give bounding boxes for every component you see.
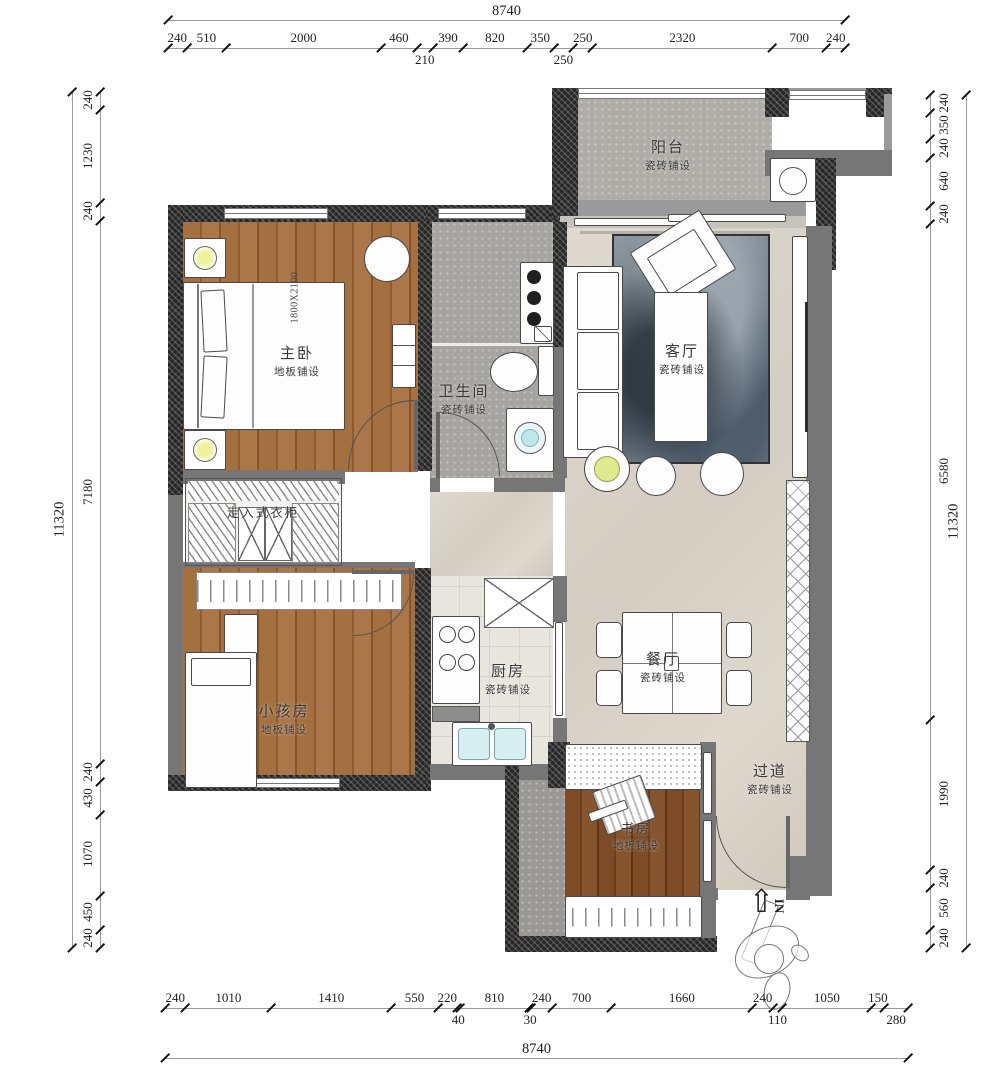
dim-label: 7180 (80, 462, 96, 522)
window-platform (789, 90, 866, 100)
sofa-cushion (577, 392, 619, 450)
dim-label: 2320 (652, 30, 712, 46)
entry-door-leaf (786, 816, 790, 888)
balcony-railing (578, 88, 772, 99)
room-finish: 地板铺设 (613, 838, 659, 853)
room-name: 阳台 (645, 136, 691, 157)
room-label-balcony: 阳台 瓷砖铺设 (645, 136, 691, 173)
room-finish: 地板铺设 (274, 364, 320, 379)
study-door-panel (703, 820, 712, 882)
burner (439, 654, 456, 671)
vanity-knob (527, 270, 541, 284)
dim-total-line (72, 92, 73, 948)
sofa-cushion (577, 332, 619, 390)
dim-label: 250 (533, 52, 593, 68)
room-finish: 瓷砖铺设 (659, 362, 705, 377)
bed-size-annotation: 1800X2100 (290, 243, 301, 353)
dim-total: 8740 (497, 1041, 577, 1058)
dim-label: 1990 (936, 764, 952, 824)
oven (432, 706, 480, 722)
room-name: 书房 (613, 818, 659, 837)
floor-entry (519, 780, 565, 938)
room-finish: 地板铺设 (258, 722, 309, 737)
lamp (193, 438, 217, 462)
window-master (224, 208, 328, 219)
burner (458, 626, 475, 643)
master-door-leaf (414, 400, 418, 470)
dim-total: 11320 (52, 480, 69, 560)
dim-label: 210 (395, 52, 455, 68)
wall-left-upper (168, 205, 183, 495)
dim-label: 150 (848, 990, 908, 1006)
room-label-dining-room: 餐厅 瓷砖铺设 (640, 648, 686, 685)
wall-kids-right (415, 568, 431, 791)
floor-plan-canvas: 阳台 瓷砖铺设 主卧 地板铺设 卫生间 瓷砖铺设 客厅 瓷砖铺设 走入式衣柜 小… (0, 0, 1008, 1078)
round-chair (364, 236, 410, 282)
room-name: 卫生间 (438, 380, 489, 401)
room-name: 厨房 (485, 660, 531, 681)
dim-label: 110 (748, 1012, 808, 1028)
room-finish: 瓷砖铺设 (747, 782, 793, 797)
dim-label: 430 (80, 768, 96, 828)
room-label-study: 书房 地板铺设 (613, 818, 659, 853)
room-name: 过道 (747, 760, 793, 781)
room-label-living-room: 客厅 瓷砖铺设 (659, 340, 705, 377)
dim-label: 240 (80, 908, 96, 968)
room-label-kids-room: 小孩房 地板铺设 (258, 700, 309, 737)
room-finish: 瓷砖铺设 (640, 670, 686, 685)
wall-bath-bottom-b (494, 478, 565, 492)
dim-label: 1010 (198, 990, 258, 1006)
dim-label: 240 (80, 181, 96, 241)
faucet (488, 723, 495, 730)
wall-study-bottom (505, 936, 717, 952)
room-name: 小孩房 (258, 700, 309, 721)
dim-label: 240 (806, 30, 866, 46)
dresser (392, 324, 416, 388)
burner (458, 654, 475, 671)
lamp (193, 246, 217, 270)
tv (805, 302, 808, 432)
dining-chair (726, 670, 752, 706)
dim-label: 240 (145, 990, 205, 1006)
entrance-label: IN (771, 899, 787, 913)
room-name: 餐厅 (640, 648, 686, 669)
dim-total-line (165, 1058, 908, 1059)
washer-drum-inner (521, 429, 539, 447)
sofa-cushion (577, 272, 619, 330)
dim-label: 250 (553, 30, 613, 46)
room-finish: 瓷砖铺设 (438, 402, 489, 417)
pouf (636, 456, 676, 496)
plant (594, 456, 620, 482)
dim-line (165, 1008, 908, 1009)
study-door-panel (703, 752, 712, 814)
dining-chair (596, 670, 622, 706)
dim-total-line (966, 95, 967, 948)
room-finish: 瓷砖铺设 (485, 682, 531, 697)
ac-fan (779, 167, 807, 195)
dim-line (168, 48, 845, 49)
dim-label: 1070 (80, 824, 96, 884)
dim-label: 240 (80, 70, 96, 130)
room-finish: 瓷砖铺设 (645, 158, 691, 173)
room-label-corridor: 过道 瓷砖铺设 (747, 760, 793, 797)
wall-balcony-left (552, 88, 578, 218)
window-bath (438, 208, 526, 219)
vanity-knob (527, 312, 541, 326)
dim-total-line (168, 20, 845, 21)
dim-label: 30 (500, 1012, 560, 1028)
room-label-walkin-closet: 走入式衣柜 (227, 502, 300, 521)
bath-tray (534, 326, 552, 342)
dim-label: 280 (866, 1012, 926, 1028)
dim-label: 1660 (652, 990, 712, 1006)
dim-label: 1410 (301, 990, 361, 1006)
toilet-tank (538, 346, 554, 396)
burner (439, 626, 456, 643)
wall-platform-tl (765, 88, 789, 117)
closet-rail (188, 481, 339, 501)
wall-bath-bottom-a (430, 478, 440, 492)
room-label-bathroom: 卫生间 瓷砖铺设 (438, 380, 489, 417)
wall-entry-left (505, 742, 519, 940)
dim-label: 240 (733, 990, 793, 1006)
pillow (200, 355, 227, 418)
corridor-cabinet (786, 480, 810, 742)
sink-basin (458, 728, 490, 760)
floor-hallway (430, 492, 553, 576)
kitchen-cabinet (484, 578, 554, 628)
wardrobe-hangers (572, 902, 695, 932)
dim-label: 240 (936, 908, 952, 968)
dim-label: 2000 (274, 30, 334, 46)
room-name: 走入式衣柜 (227, 502, 300, 521)
pouf (700, 452, 744, 496)
sink-basin (494, 728, 526, 760)
sketch-head (754, 944, 784, 974)
kitchen-sliding-door (555, 622, 563, 716)
room-name: 客厅 (659, 340, 705, 361)
wall-kitchen-top (553, 576, 567, 622)
blanket-line (252, 284, 254, 428)
kids-pillow (191, 658, 251, 686)
dim-label: 700 (552, 990, 612, 1006)
room-label-kitchen: 厨房 瓷砖铺设 (485, 660, 531, 697)
dim-label: 1230 (80, 126, 96, 186)
pillow (200, 289, 227, 352)
wall-kitchen-bottom (430, 764, 565, 780)
toilet-bowl (490, 352, 538, 392)
wall-right-upper (806, 226, 832, 482)
dim-label: 40 (428, 1012, 488, 1028)
headboard-line (197, 284, 199, 428)
dim-label: 240 (936, 184, 952, 244)
wall-entry-bottom-b (786, 888, 810, 900)
dim-total: 8740 (467, 3, 547, 20)
wall-master-bath-divider (418, 221, 432, 471)
wall-entry-bottom-a (700, 888, 718, 900)
wall-left-lower (168, 495, 183, 791)
dining-chair (596, 622, 622, 658)
dining-chair (726, 622, 752, 658)
dim-total: 11320 (946, 481, 963, 561)
vanity-knob (527, 291, 541, 305)
dim-label: 510 (176, 30, 236, 46)
